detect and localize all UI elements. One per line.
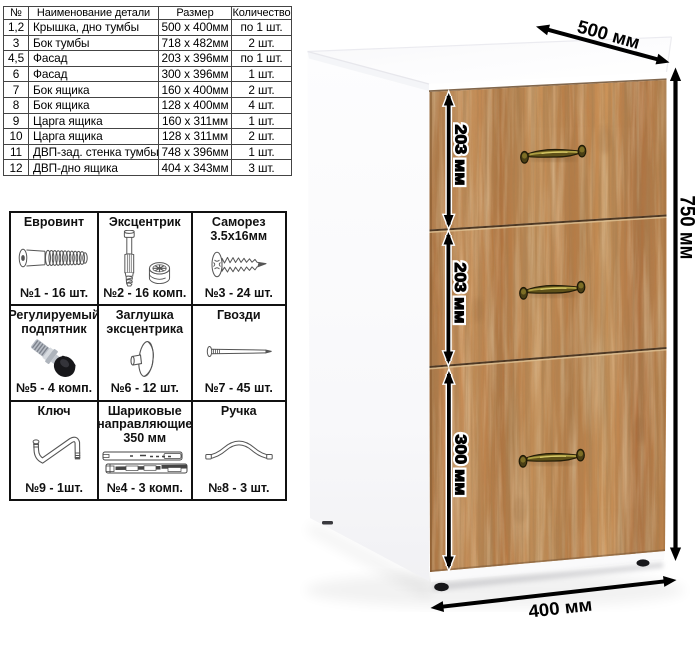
svg-text:203 мм: 203 мм <box>452 125 469 186</box>
svg-text:203 мм: 203 мм <box>451 263 468 324</box>
svg-text:750 мм: 750 мм <box>676 196 700 260</box>
svg-text:300 мм: 300 мм <box>452 435 469 496</box>
